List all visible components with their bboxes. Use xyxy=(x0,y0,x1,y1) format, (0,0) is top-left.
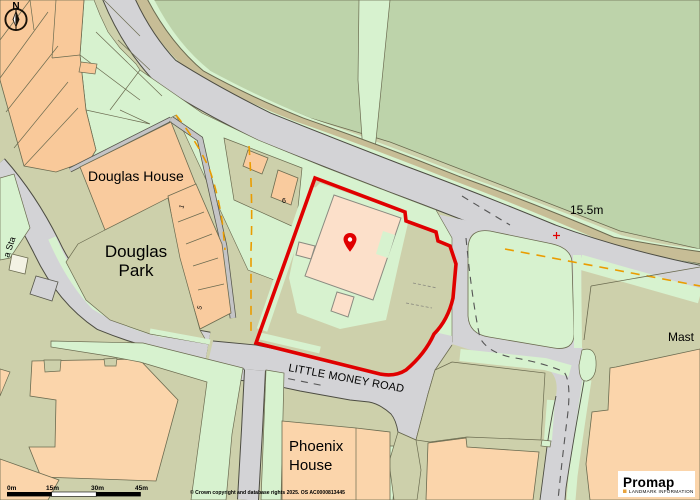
svg-text:LANDMARK INFORMATION: LANDMARK INFORMATION xyxy=(629,489,694,494)
svg-text:Douglas House: Douglas House xyxy=(88,168,184,184)
svg-text:15m: 15m xyxy=(46,485,59,492)
svg-text:30m: 30m xyxy=(91,485,104,492)
svg-text:Mast: Mast xyxy=(668,330,695,344)
svg-text:Park: Park xyxy=(119,261,154,280)
svg-text:15.5m: 15.5m xyxy=(570,203,603,217)
svg-text:Phoenix: Phoenix xyxy=(289,438,344,455)
svg-text:Douglas: Douglas xyxy=(105,242,167,261)
svg-text:45m: 45m xyxy=(135,485,148,492)
svg-text:Promap: Promap xyxy=(623,475,674,490)
svg-text:6: 6 xyxy=(282,198,286,205)
svg-text:0m: 0m xyxy=(7,485,17,492)
svg-text:N: N xyxy=(12,1,19,12)
svg-text:© Crown copyright and database: © Crown copyright and database rights 20… xyxy=(190,489,345,496)
svg-text:House: House xyxy=(289,457,332,474)
